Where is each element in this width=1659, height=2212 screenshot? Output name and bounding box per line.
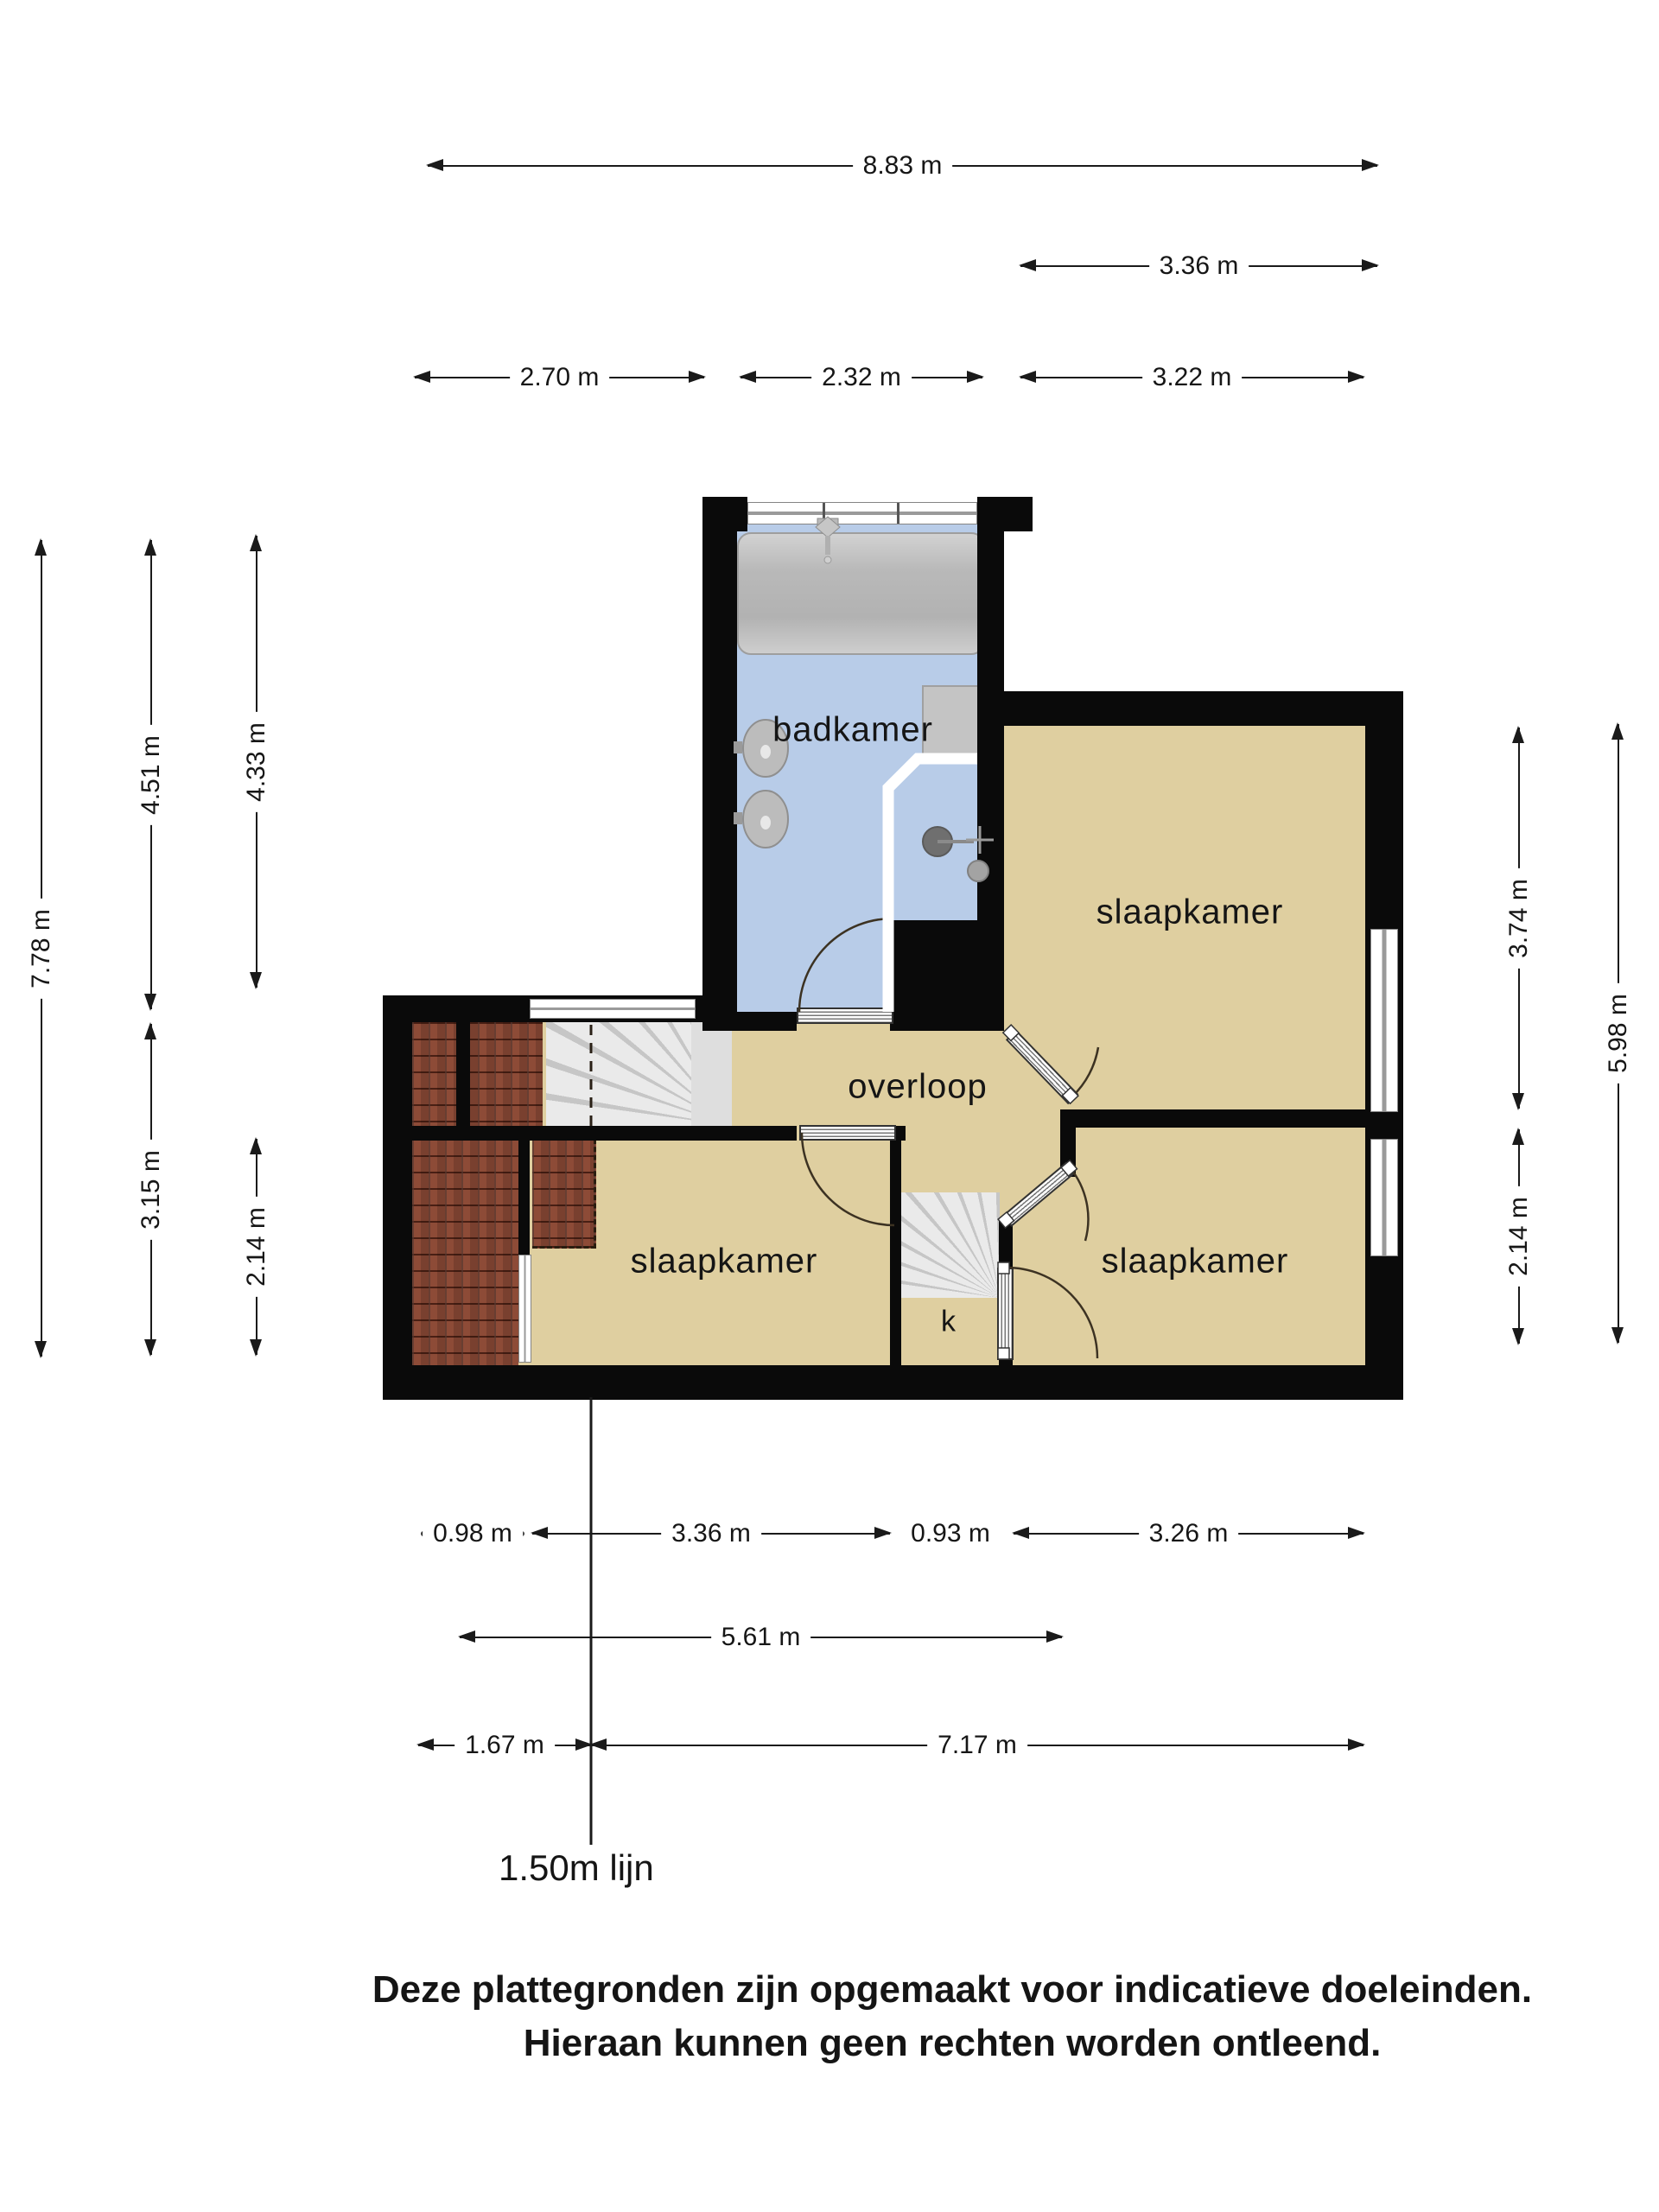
dimension-label: 8.83 m: [853, 151, 953, 181]
arrow-up-icon: [35, 538, 47, 556]
dimension-label: 2.32 m: [811, 363, 912, 392]
wall-bathroom-corner-block: [890, 920, 1004, 1031]
dimension-label: 3.22 m: [1142, 363, 1243, 392]
window-bathroom-top: [747, 502, 977, 524]
arrow-down-icon: [1512, 1093, 1524, 1110]
dimension-label: 3.26 m: [1139, 1519, 1239, 1548]
arrow-left-icon: [426, 159, 443, 171]
arrow-down-icon: [250, 972, 262, 989]
arrow-right-icon: [1046, 1630, 1064, 1643]
dimension-label: 7.17 m: [927, 1731, 1027, 1760]
room-label-slaapkamer-bottom-right: slaapkamer: [1102, 1243, 1289, 1281]
arrow-down-icon: [1611, 1327, 1624, 1344]
dimension-label: 3.15 m: [137, 1140, 166, 1240]
floorplan-page: { "floorplan": { "rooms": [ {"id": "badk…: [0, 0, 1659, 2212]
dimension-label: 4.33 m: [242, 712, 271, 812]
arrow-left-icon: [589, 1738, 607, 1751]
wall-bathroom-bottom: [737, 1012, 797, 1031]
window-bedroom-top-right: [1370, 929, 1398, 1112]
door-bedroom-bottom-right-lower: [997, 1268, 1014, 1360]
dimension-label: 2.14 m: [242, 1197, 271, 1297]
arrow-up-icon: [1512, 726, 1524, 743]
dimension-label: 0.98 m: [423, 1519, 523, 1548]
arrow-right-icon: [689, 371, 706, 383]
arrow-right-icon: [1348, 1738, 1365, 1751]
wall-bedroom-top-right-top: [985, 691, 1403, 726]
room-label-kast: k: [941, 1306, 957, 1339]
arrow-left-icon: [413, 371, 430, 383]
dimension-label: 1.67 m: [454, 1731, 555, 1760]
roof-slope-brick-lower-left: [412, 1139, 518, 1365]
dimension-label: 7.78 m: [27, 899, 56, 999]
arrow-left-icon: [1019, 371, 1036, 383]
wall-bathroom-top-left-stub: [702, 497, 747, 531]
arrow-right-icon: [1348, 371, 1365, 383]
dimension-label: 0.93 m: [900, 1519, 1001, 1548]
arrow-up-icon: [250, 1137, 262, 1154]
arrow-down-icon: [1512, 1328, 1524, 1345]
arrow-right-icon: [1362, 259, 1379, 271]
dimension-label: 3.74 m: [1504, 868, 1534, 969]
window-overloop-top: [530, 999, 696, 1019]
arrow-up-icon: [1611, 722, 1624, 740]
dimension-label: 5.61 m: [711, 1623, 811, 1652]
dimension-label: 4.51 m: [137, 725, 166, 825]
arrow-left-icon: [531, 1527, 548, 1539]
room-label-badkamer: badkamer: [772, 711, 933, 750]
window-bedroom-bottom-right: [1370, 1139, 1398, 1256]
arrow-right-icon: [967, 371, 984, 383]
arrow-down-icon: [144, 994, 156, 1011]
dimension-label: 3.36 m: [1149, 251, 1249, 281]
height-line-label: 1.50m lijn: [499, 1847, 654, 1889]
arrow-up-icon: [144, 1022, 156, 1039]
arrow-left-icon: [1012, 1527, 1029, 1539]
disclaimer-line-2: Hieraan kunnen geen rechten worden ontle…: [261, 2017, 1643, 2070]
wall-outer-bottom: [383, 1365, 1403, 1400]
wall-outer-left: [383, 995, 412, 1400]
staircase-attic: [901, 1192, 1000, 1298]
roof-slope-brick-upper: [412, 1022, 543, 1126]
dimension-label: 5.98 m: [1604, 983, 1633, 1084]
arrow-up-icon: [250, 534, 262, 551]
wall-brick-divider-upper: [456, 1022, 470, 1126]
arrow-left-icon: [739, 371, 756, 383]
roof-slope-brick-lower-right: [532, 1139, 596, 1249]
window-mullion-tick: [897, 503, 899, 524]
wall-bedroom-left-top-a: [383, 1126, 797, 1141]
arrow-left-icon: [416, 1738, 434, 1751]
bathtub: [737, 532, 985, 655]
wall-brick-divider-lower: [518, 1139, 530, 1255]
room-label-slaapkamer-bottom-left: slaapkamer: [631, 1243, 818, 1281]
wall-stair-zone-left: [890, 1141, 901, 1365]
arrow-right-icon: [1348, 1527, 1365, 1539]
wall-bedroom-bottom-right-top: [1060, 1109, 1403, 1128]
arrow-down-icon: [250, 1339, 262, 1357]
door-bedroom-bottom-left: [799, 1125, 896, 1141]
arrow-right-icon: [1362, 159, 1379, 171]
room-label-overloop: overloop: [848, 1068, 987, 1107]
room-label-slaapkamer-top-right: slaapkamer: [1096, 893, 1284, 932]
arrow-left-icon: [458, 1630, 475, 1643]
arrow-down-icon: [35, 1341, 47, 1358]
disclaimer: Deze plattegronden zijn opgemaakt voor i…: [261, 1963, 1643, 2070]
staircase-landing: [691, 1022, 732, 1126]
dimension-label: 2.14 m: [1504, 1186, 1534, 1287]
wall-bathroom-left: [702, 497, 737, 1031]
wall-stair-zone-right-stub: [999, 1220, 1013, 1268]
door-bathroom: [797, 1007, 893, 1024]
window-mullion-tick: [823, 503, 825, 524]
arrow-left-icon: [1019, 259, 1036, 271]
disclaimer-line-1: Deze plattegronden zijn opgemaakt voor i…: [261, 1963, 1643, 2017]
arrow-right-icon: [874, 1527, 892, 1539]
arrow-up-icon: [144, 538, 156, 556]
dimension-label: 3.36 m: [661, 1519, 761, 1548]
dimension-label: 2.70 m: [510, 363, 610, 392]
arrow-up-icon: [1512, 1128, 1524, 1145]
arrow-down-icon: [144, 1339, 156, 1357]
window-roof-slope: [518, 1255, 531, 1363]
